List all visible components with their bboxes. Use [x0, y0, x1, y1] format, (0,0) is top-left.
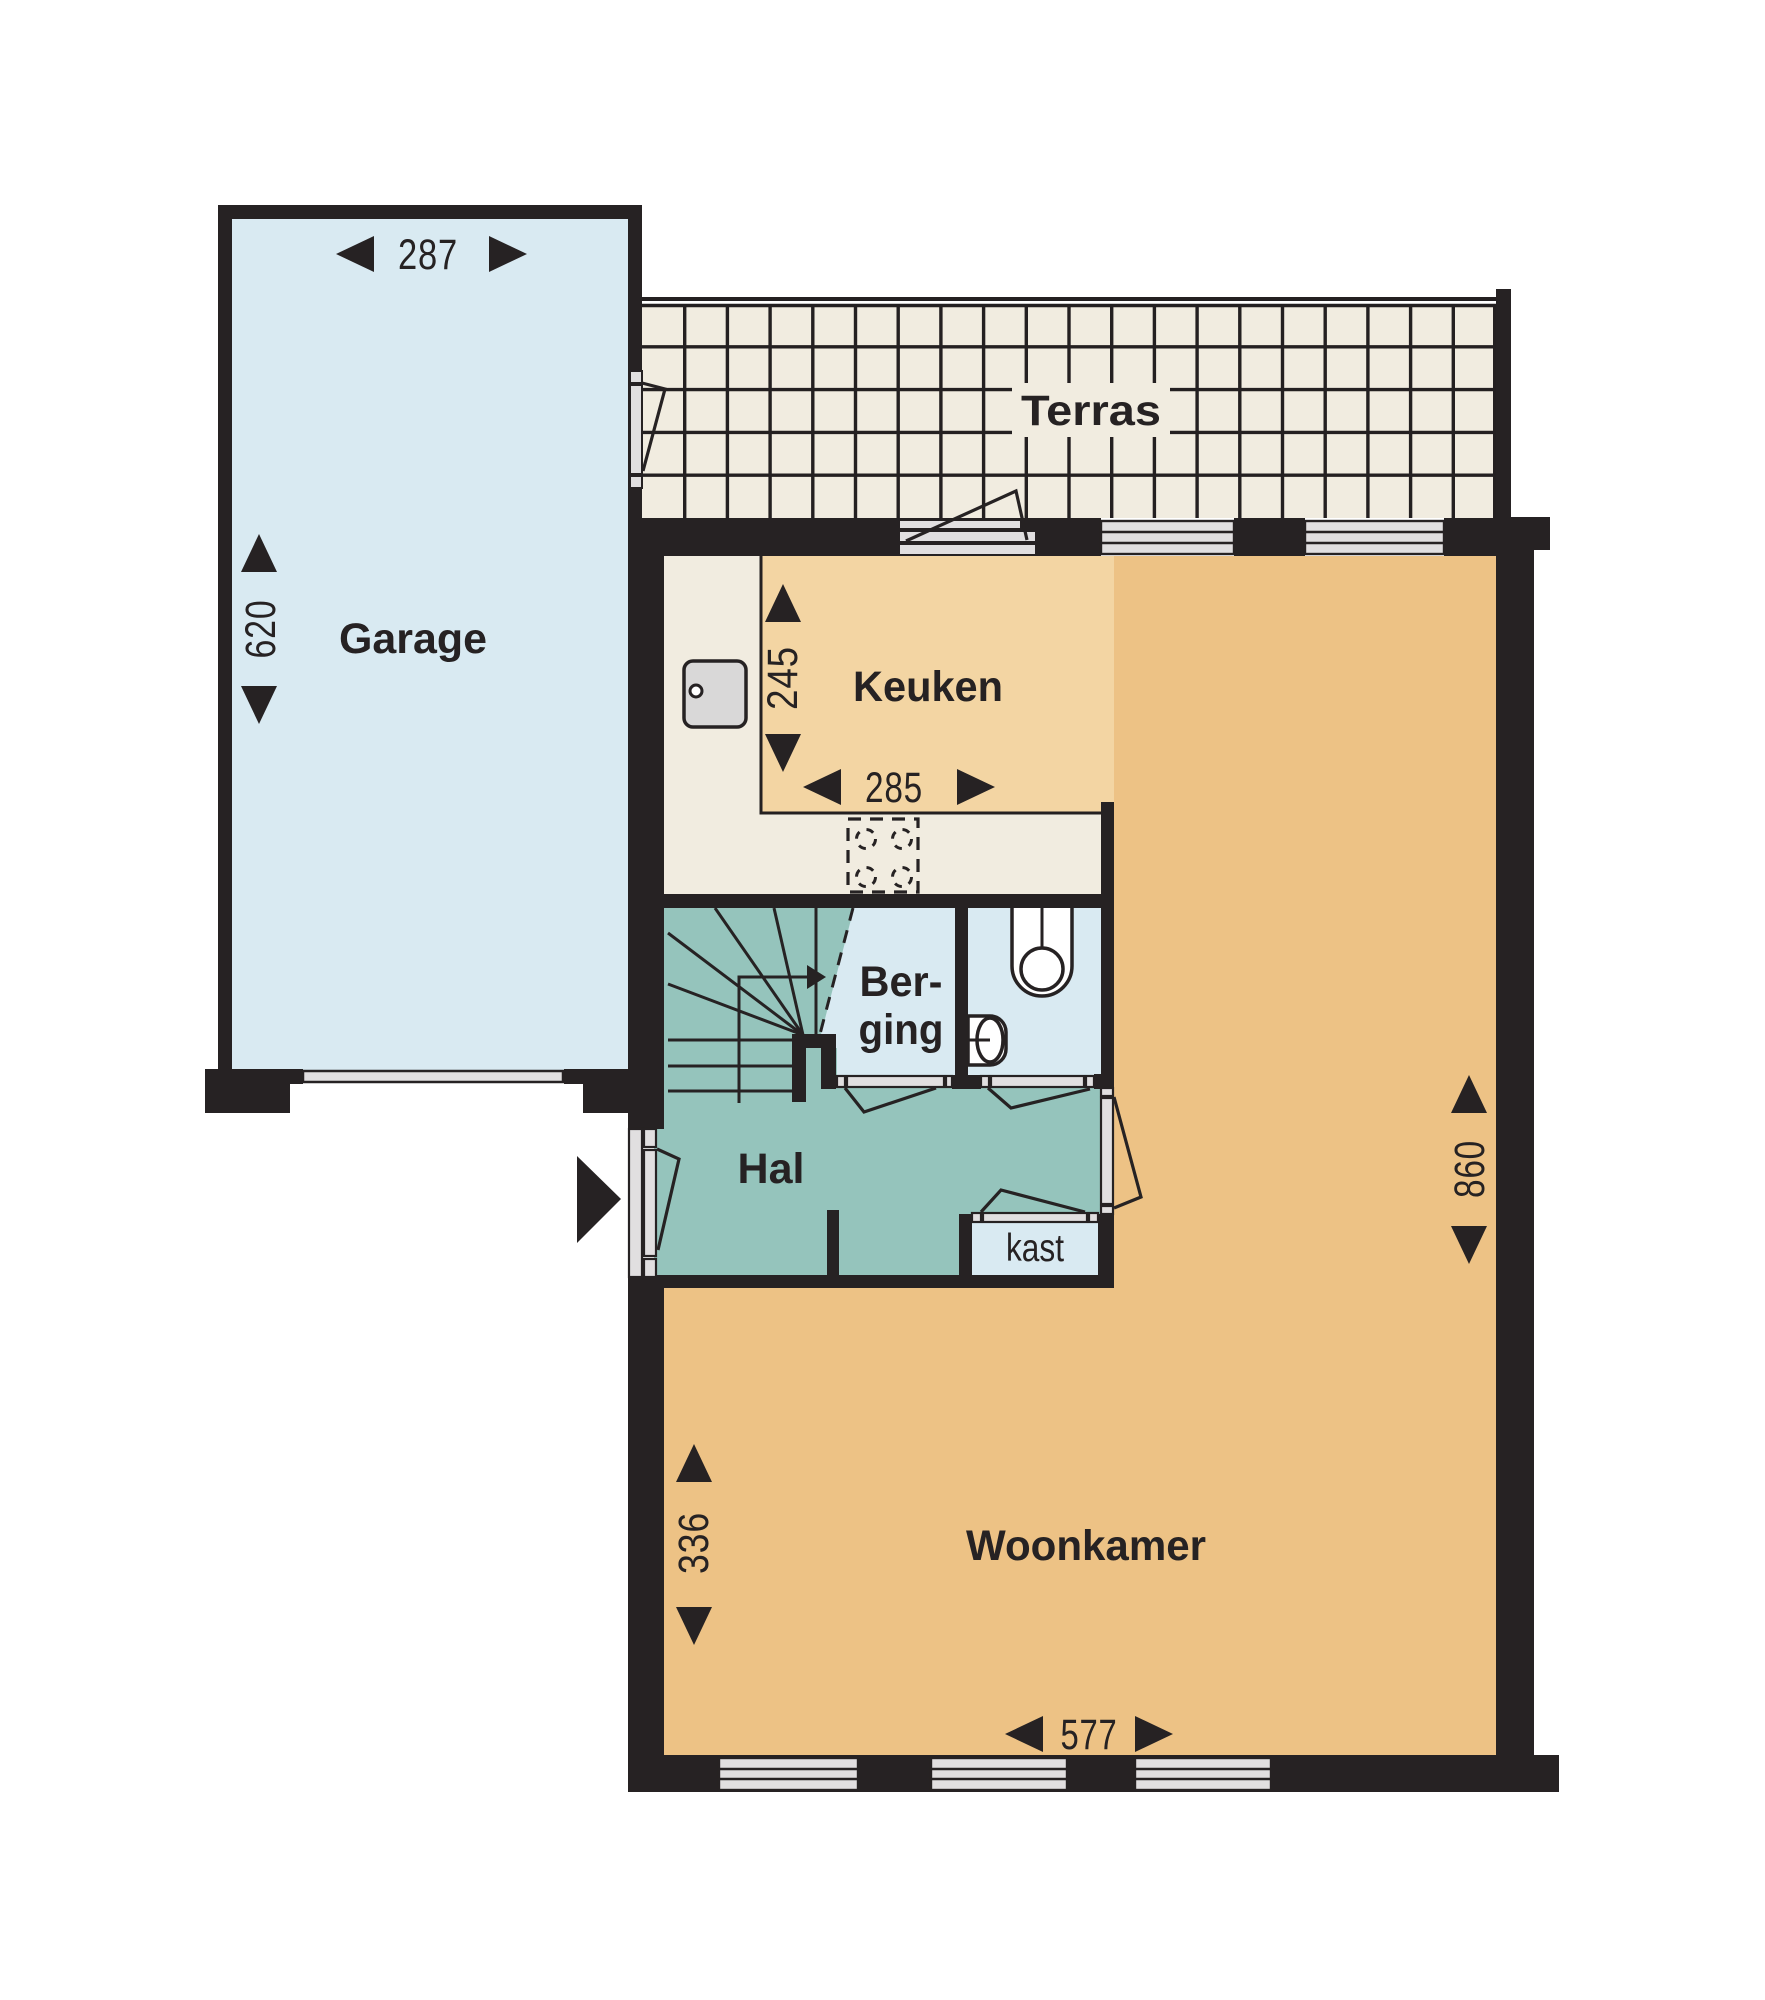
svg-text:577: 577	[1061, 1711, 1118, 1759]
svg-text:Keuken: Keuken	[853, 663, 1003, 711]
svg-text:ging: ging	[859, 1006, 944, 1054]
svg-text:Garage: Garage	[339, 615, 487, 663]
svg-text:336: 336	[670, 1512, 718, 1574]
svg-text:Hal: Hal	[738, 1145, 805, 1193]
svg-text:620: 620	[237, 600, 285, 659]
svg-text:285: 285	[865, 764, 923, 812]
svg-text:Terras: Terras	[1021, 387, 1161, 435]
svg-text:245: 245	[759, 646, 807, 710]
svg-text:287: 287	[398, 231, 458, 279]
svg-text:kast: kast	[1006, 1227, 1064, 1270]
svg-text:860: 860	[1446, 1140, 1494, 1198]
svg-text:Ber-: Ber-	[860, 958, 943, 1006]
svg-text:Woonkamer: Woonkamer	[966, 1522, 1206, 1570]
